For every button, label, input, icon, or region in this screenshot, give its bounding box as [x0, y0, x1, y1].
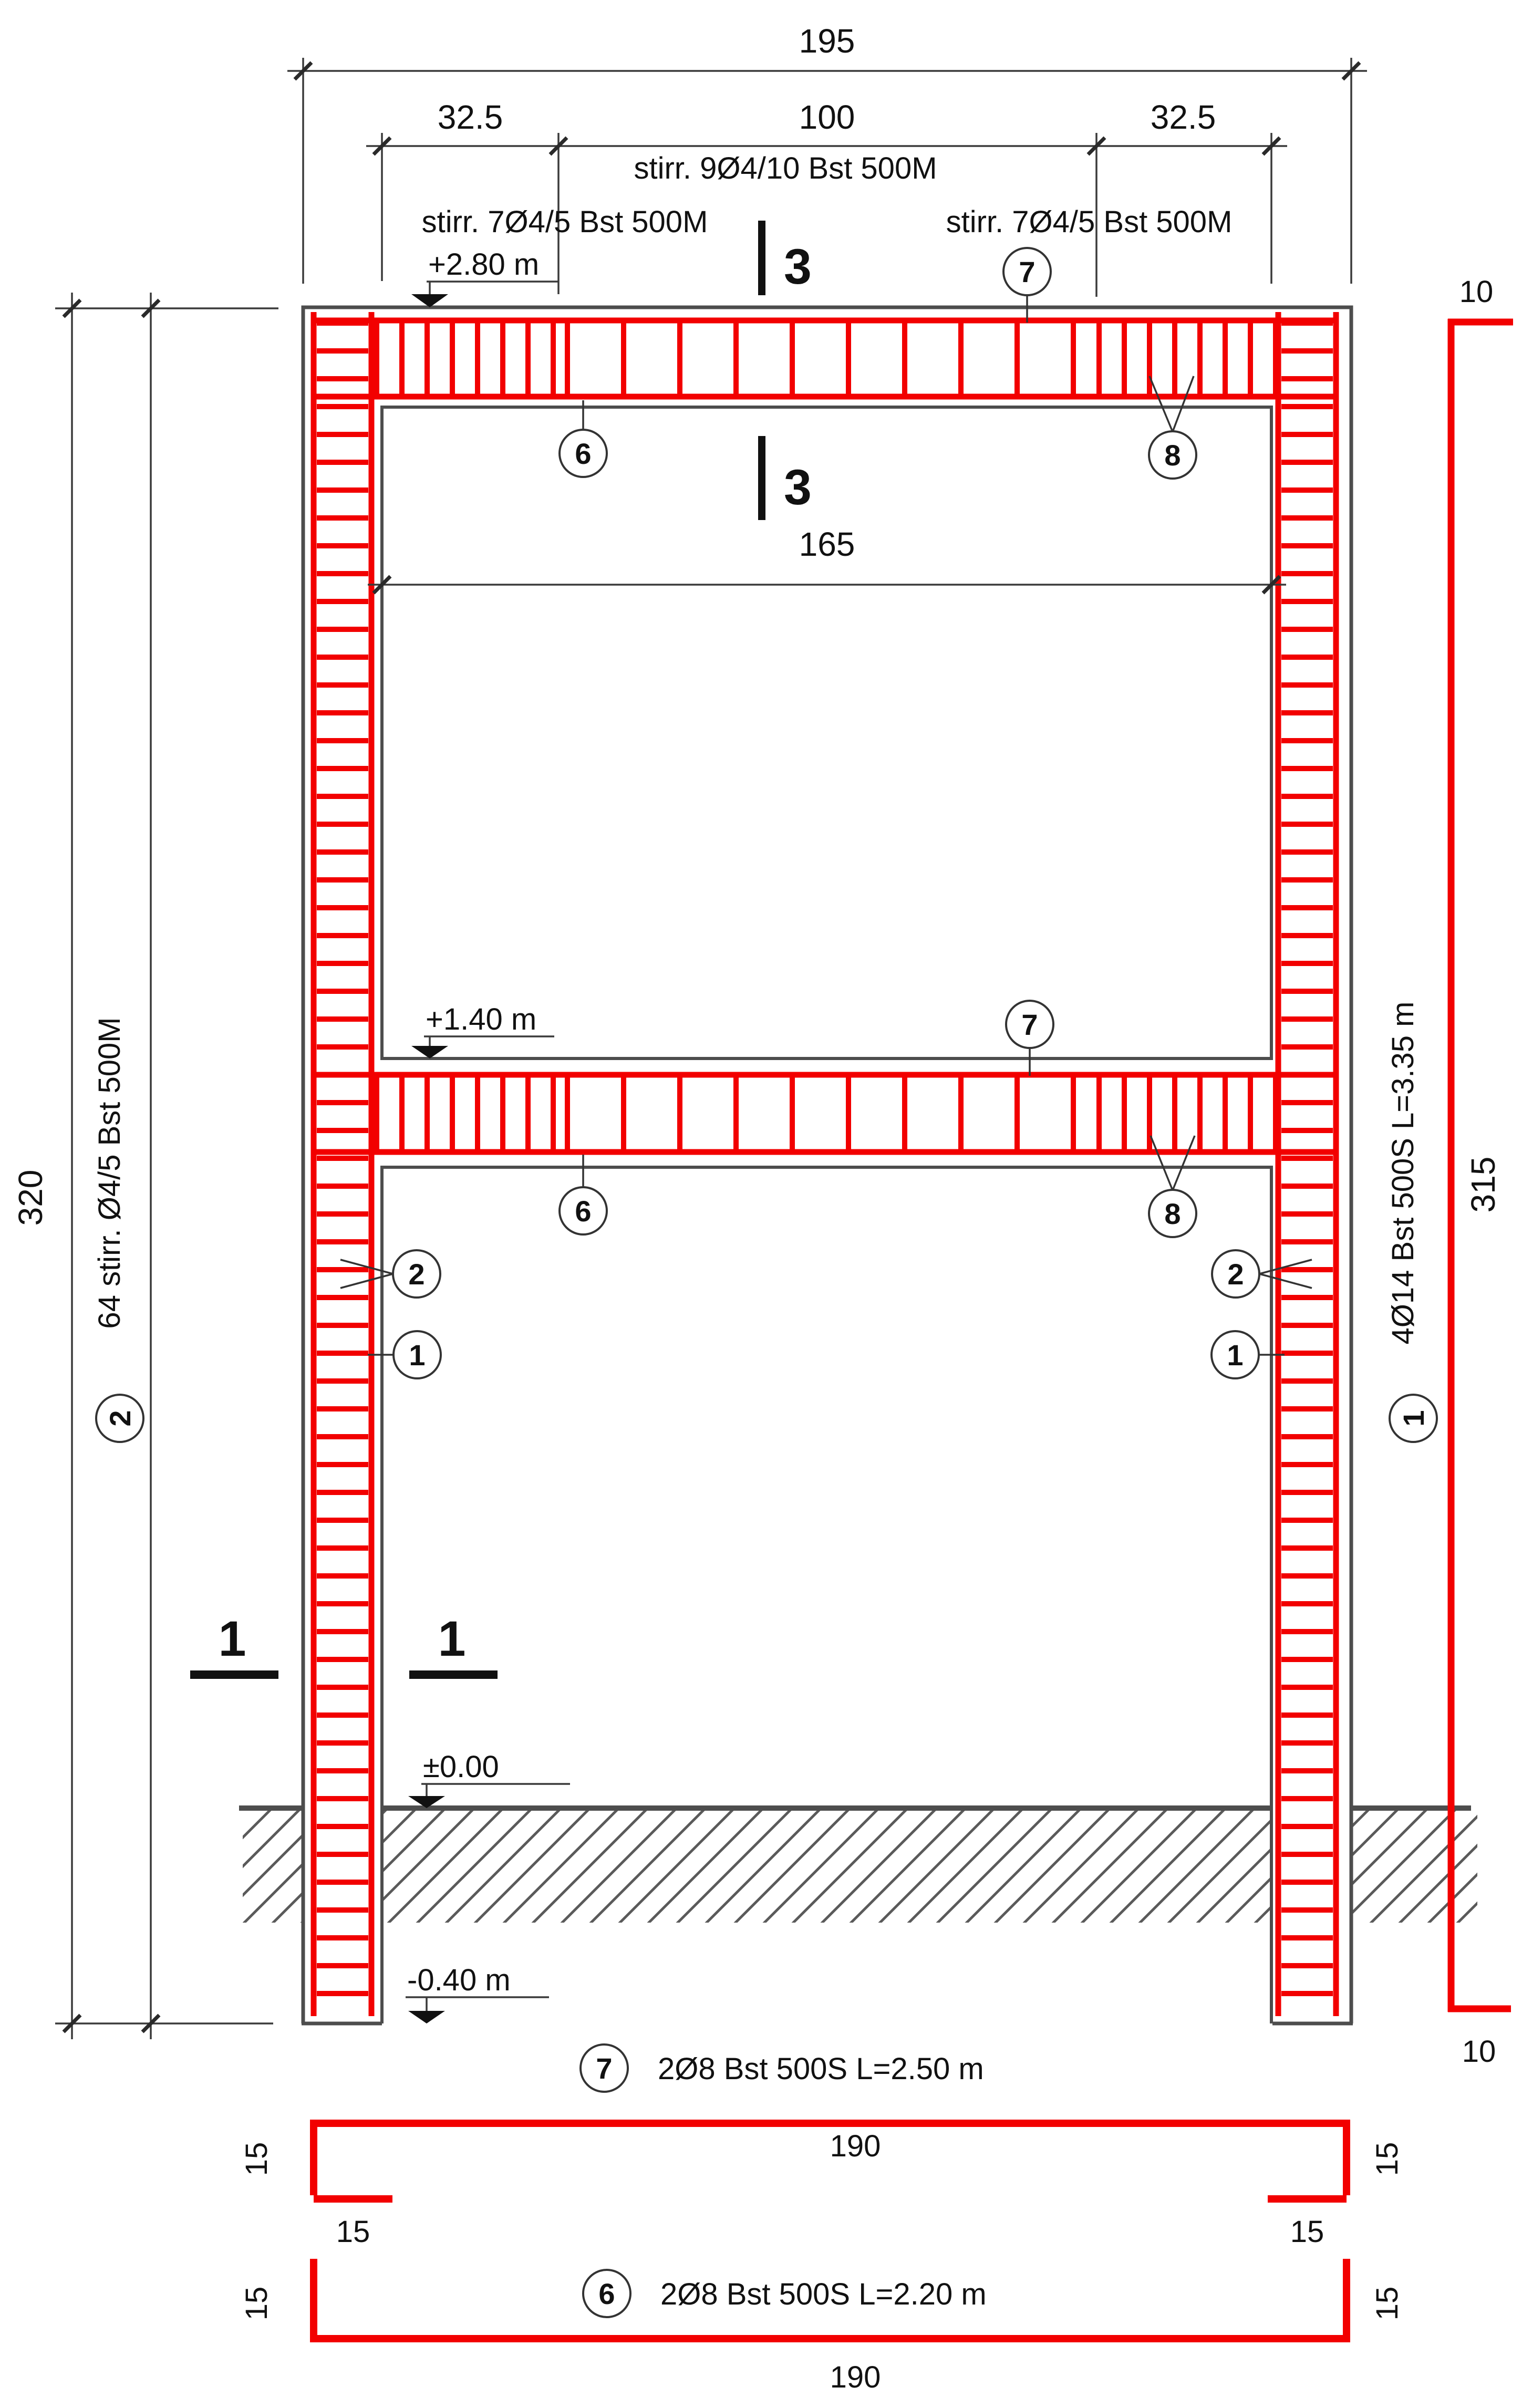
label-column-stirrups-text: 64 stirr. Ø4/5 Bst 500M [92, 1017, 127, 1328]
section-marker-3-top: 3 [762, 221, 812, 295]
level-foundation-arrow [408, 2011, 445, 2023]
label-column-stirrups: 2 64 stirr. Ø4/5 Bst 500M [92, 1017, 143, 1442]
section-1-left-number: 1 [219, 1611, 246, 1667]
dim-beam-right: 32.5 [1151, 98, 1216, 136]
callout-7-top-number: 7 [1019, 255, 1035, 288]
level-roof-text: +2.80 m [428, 247, 539, 282]
section-3-top-number: 3 [784, 239, 812, 295]
label-main-bars-text: 4Ø14 Bst 500S L=3.35 m [1386, 1002, 1420, 1345]
label-beam-left-stirrups: stirr. 7Ø4/5 Bst 500M [422, 205, 708, 239]
callout-7-middle: 7 [1006, 1001, 1053, 1076]
level-floor-arrow [411, 1046, 448, 1058]
bar-1-extracted: 10 10 315 1 4Ø14 Bst 500S L=3.35 m [1386, 275, 1513, 2069]
dim-clear-span: 165 [799, 525, 855, 563]
level-roof-arrow [411, 294, 448, 307]
section-marker-1-left: 1 [190, 1611, 278, 1675]
left-column-stirrups [317, 315, 368, 2016]
callout-7-top: 7 [1003, 248, 1051, 323]
level-ground-text: ±0.00 [423, 1750, 499, 1784]
detail-bar-7-hook-right: 15 [1290, 2215, 1324, 2249]
level-foundation-text: -0.40 m [407, 1963, 511, 1997]
detail-bar-6: 6 2Ø8 Bst 500S L=2.20 m 15 15 190 [240, 2259, 1404, 2394]
level-floor-text: +1.40 m [426, 1002, 536, 1036]
dim-beam-mid: 100 [799, 98, 855, 136]
top-beam-reinforcement [311, 320, 1339, 397]
callout-8-middle-number: 8 [1164, 1197, 1181, 1230]
detail-bar-6-leg-left: 15 [240, 2287, 274, 2321]
detail-bar-6-label: 2Ø8 Bst 500S L=2.20 m [660, 2277, 987, 2311]
callout-2-right-number: 2 [1227, 1258, 1244, 1291]
callout-1-side-number: 1 [1397, 1410, 1430, 1426]
section-3-bottom-number: 3 [784, 460, 812, 515]
section-1-right-number: 1 [438, 1611, 466, 1667]
upper-opening [382, 407, 1271, 1058]
level-ground: ±0.00 [408, 1750, 570, 1808]
right-column-stirrups [1281, 315, 1333, 2016]
label-beam-right-stirrups: stirr. 7Ø4/5 Bst 500M [946, 205, 1233, 239]
detail-bar-7-leg-right: 15 [1370, 2142, 1404, 2176]
label-beam-mid-stirrups: stirr. 9Ø4/10 Bst 500M [634, 151, 937, 185]
callout-2-left-number: 2 [408, 1258, 424, 1291]
detail-bar-6-width: 190 [830, 2360, 881, 2394]
callout-6-top-number: 6 [575, 437, 591, 470]
dim-overall-height: 320 [12, 1170, 49, 1226]
detail-bar-6-mark: 6 [598, 2277, 615, 2310]
middle-beam-stirrups-middle [558, 1077, 1095, 1149]
callout-6-top: 6 [560, 400, 607, 477]
level-floor: +1.40 m [411, 1002, 554, 1058]
callout-1-right-number: 1 [1227, 1338, 1243, 1372]
dim-beam-left: 32.5 [438, 98, 503, 136]
bar-1-top-hook-dim: 10 [1459, 275, 1494, 309]
callout-8-top-number: 8 [1164, 439, 1181, 472]
middle-beam-reinforcement [311, 1075, 1339, 1152]
frame-reinforcement-drawing: 195 32.5 100 32.5 stirr. 9Ø4/10 Bst 500M… [0, 0, 1522, 2408]
detail-bar-7-hook-left: 15 [336, 2215, 370, 2249]
detail-bar-7-leg-left: 15 [240, 2142, 274, 2176]
middle-beam-stirrups-dense-right [1096, 1077, 1276, 1149]
section-marker-3-bottom: 3 [762, 436, 812, 520]
callout-7-middle-number: 7 [1021, 1008, 1038, 1041]
top-beam-stirrups-dense-right [1096, 323, 1276, 394]
dimension-clear-span: 165 [368, 525, 1286, 593]
reinforcement-drawing-sheet: 195 32.5 100 32.5 stirr. 9Ø4/10 Bst 500M… [0, 0, 1522, 2408]
level-roof: +2.80 m [411, 247, 558, 307]
callout-6-middle-number: 6 [575, 1195, 591, 1228]
dimension-overall-height: 320 [12, 293, 278, 2039]
callout-1-left-number: 1 [409, 1338, 425, 1372]
bar-1-length-dim: 315 [1464, 1157, 1502, 1213]
top-beam-stirrups-dense-left [374, 323, 558, 394]
detail-bar-7-label: 2Ø8 Bst 500S L=2.50 m [658, 2052, 984, 2086]
top-beam-stirrups-middle [558, 323, 1095, 394]
detail-bar-7-mark: 7 [596, 2052, 612, 2085]
detail-bar-7-width: 190 [830, 2129, 881, 2163]
dim-overall-width: 195 [799, 22, 855, 60]
detail-bar-7: 7 2Ø8 Bst 500S L=2.50 m 190 15 15 15 15 [240, 2044, 1404, 2249]
bar-1-bottom-hook-dim: 10 [1462, 2035, 1496, 2069]
detail-bar-6-leg-right: 15 [1370, 2287, 1404, 2321]
level-foundation: -0.40 m [406, 1963, 549, 2023]
middle-beam-stirrups-dense-left [374, 1077, 558, 1149]
section-marker-1-right: 1 [409, 1611, 498, 1675]
callout-2-side-number: 2 [103, 1410, 137, 1426]
